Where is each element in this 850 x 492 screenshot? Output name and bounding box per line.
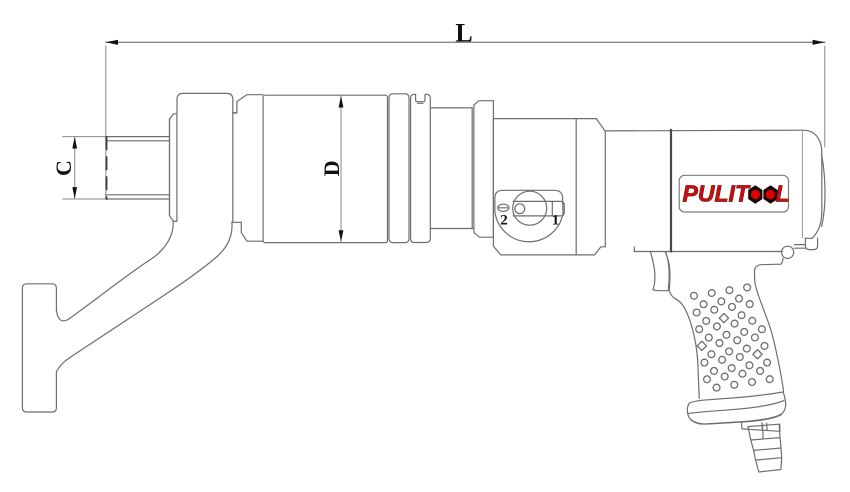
svg-text:D: D [319, 160, 344, 176]
svg-text:L: L [455, 19, 472, 48]
svg-text:1: 1 [552, 213, 560, 229]
svg-text:C: C [51, 160, 76, 176]
svg-text:PULIT: PULIT [683, 181, 751, 207]
svg-text:2: 2 [500, 213, 508, 229]
svg-text:L: L [776, 181, 790, 207]
